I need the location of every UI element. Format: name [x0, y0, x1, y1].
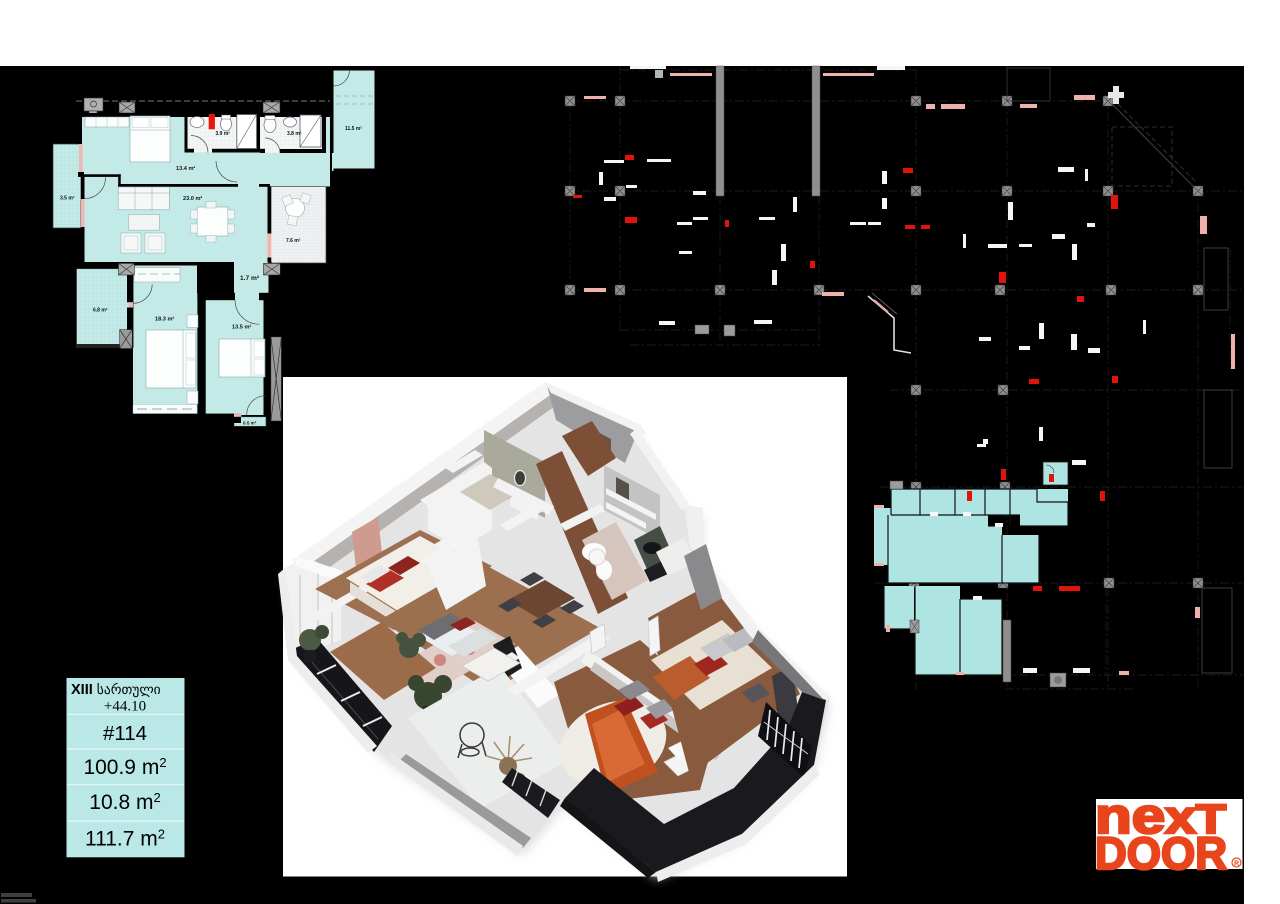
svg-text:XIII სართული: XIII სართული — [71, 682, 161, 698]
svg-text:7.6 m²: 7.6 m² — [286, 238, 301, 244]
svg-text:18.3 m²: 18.3 m² — [155, 316, 174, 323]
svg-text:23.0 m²: 23.0 m² — [183, 195, 202, 202]
svg-text:6.8 m²: 6.8 m² — [93, 308, 108, 314]
svg-text:#114: #114 — [103, 722, 147, 745]
svg-text:3.8 m²: 3.8 m² — [287, 131, 302, 137]
svg-text:R: R — [1234, 861, 1239, 868]
svg-text:DOOR: DOOR — [1095, 828, 1227, 879]
svg-text:3.5 m²: 3.5 m² — [60, 196, 75, 202]
svg-text:3.9 m²: 3.9 m² — [216, 131, 231, 137]
svg-text:13.4 m²: 13.4 m² — [176, 165, 195, 172]
svg-text:111.7 m2: 111.7 m2 — [85, 827, 165, 851]
svg-text:11.5 m²: 11.5 m² — [345, 126, 362, 132]
svg-text:+44.10: +44.10 — [104, 699, 146, 715]
svg-text:13.5 m²: 13.5 m² — [232, 324, 251, 331]
svg-text:0.5 m²: 0.5 m² — [243, 421, 257, 426]
svg-text:100.9 m2: 100.9 m2 — [83, 755, 166, 779]
svg-text:1.7 m²: 1.7 m² — [240, 275, 260, 282]
svg-text:10.8 m2: 10.8 m2 — [89, 790, 160, 814]
